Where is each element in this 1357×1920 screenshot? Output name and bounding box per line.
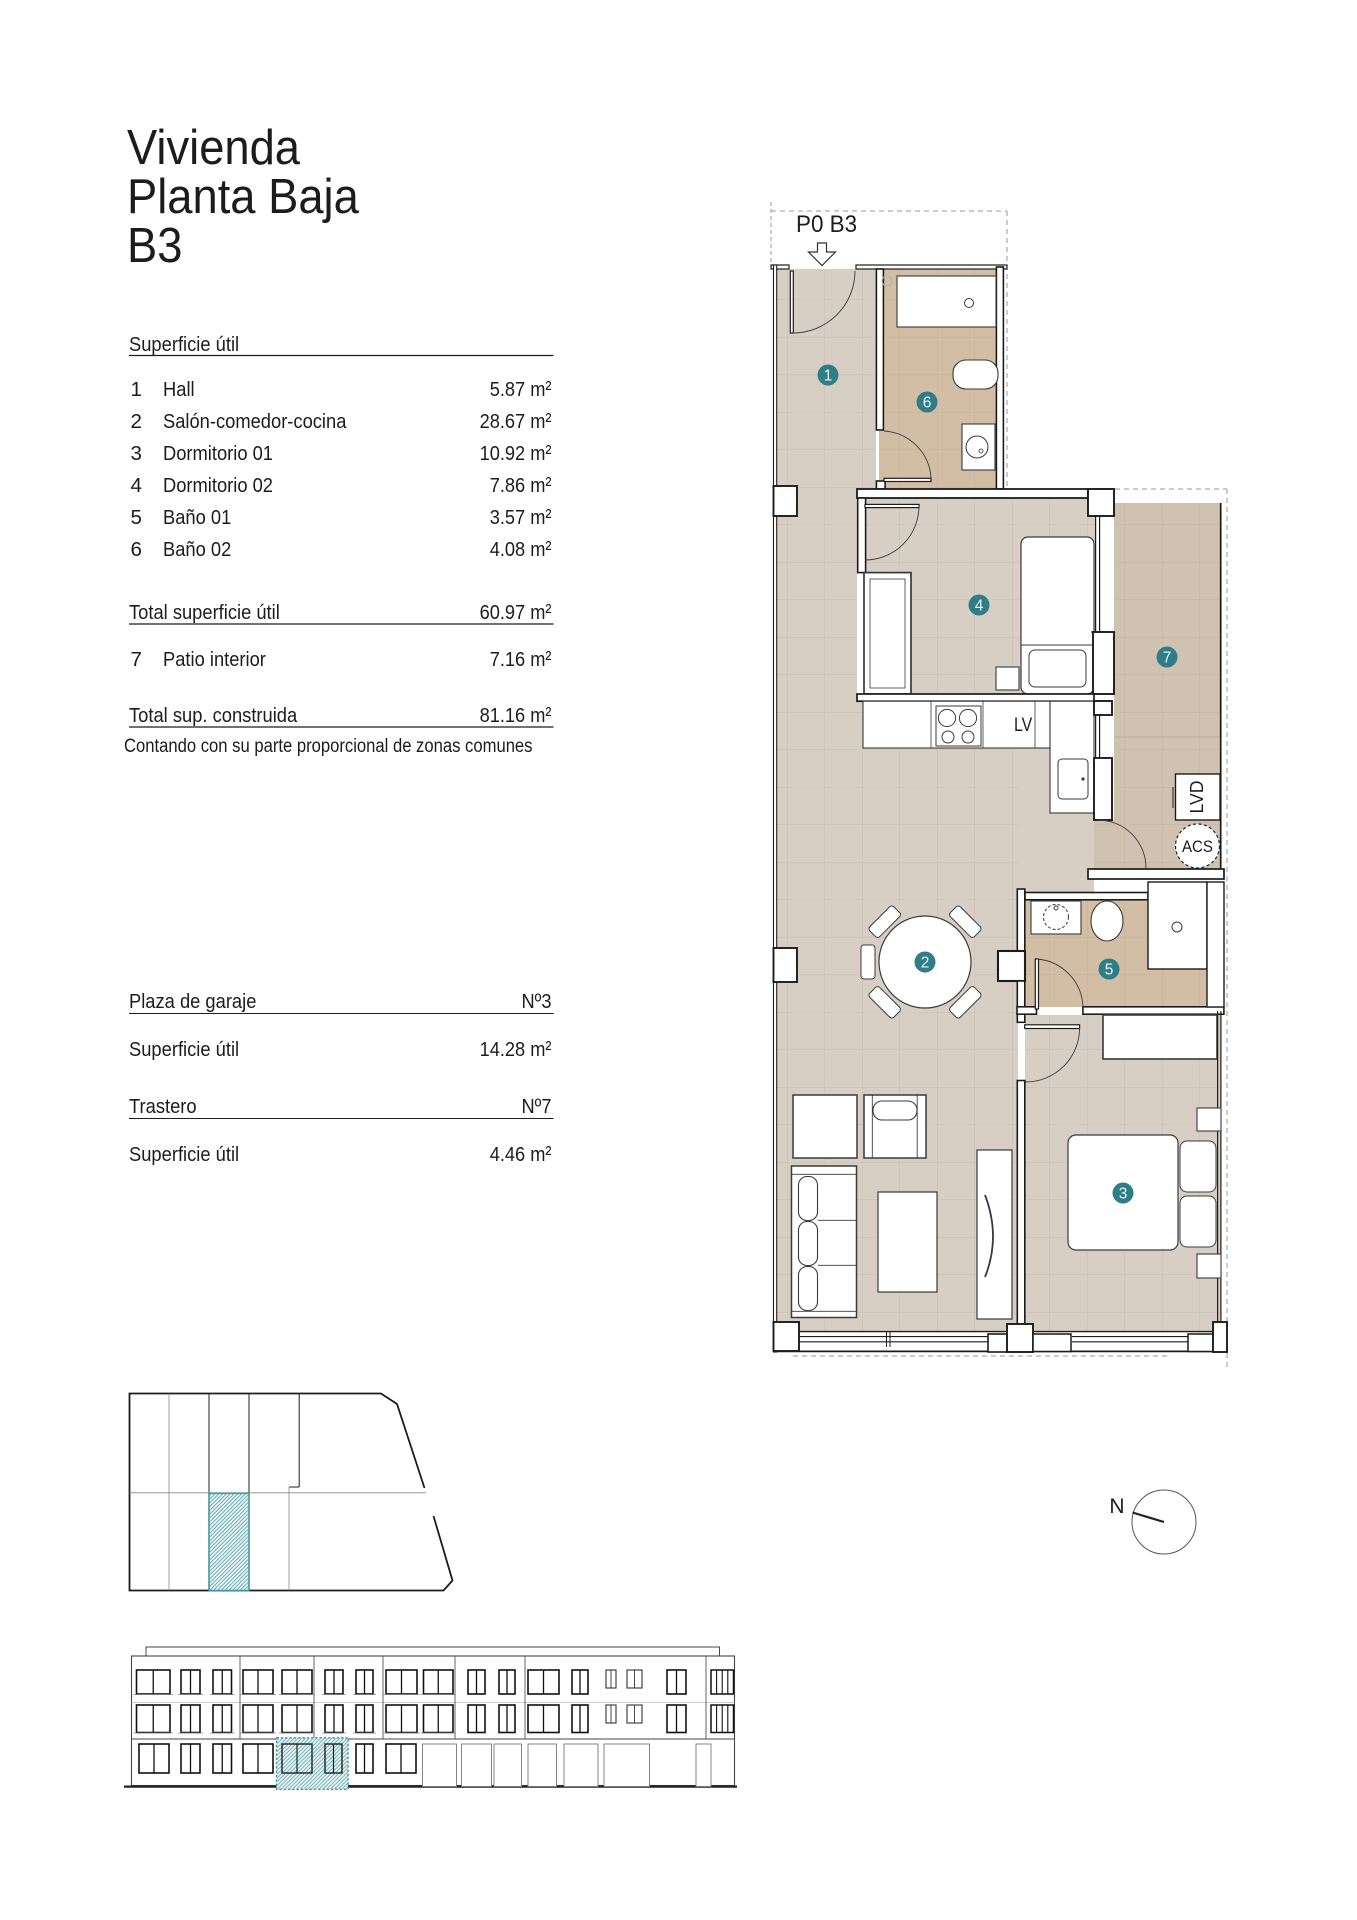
svg-text:5.87 m²: 5.87 m² <box>490 378 552 401</box>
svg-text:28.67 m²: 28.67 m² <box>480 410 552 433</box>
svg-text:4: 4 <box>131 474 142 497</box>
svg-text:Baño 02: Baño 02 <box>163 538 231 561</box>
svg-text:Vivienda: Vivienda <box>127 121 301 175</box>
svg-text:3: 3 <box>131 442 142 465</box>
svg-text:5: 5 <box>1105 962 1114 979</box>
svg-text:Planta Baja: Planta Baja <box>127 170 359 224</box>
svg-text:Superficie útil: Superficie útil <box>129 1143 239 1166</box>
svg-text:Trastero: Trastero <box>129 1095 197 1118</box>
svg-text:Patio interior: Patio interior <box>163 648 266 671</box>
svg-text:7: 7 <box>131 648 142 671</box>
svg-text:Plaza de garaje: Plaza de garaje <box>129 990 256 1013</box>
svg-text:5: 5 <box>131 506 142 529</box>
svg-text:6: 6 <box>131 538 142 561</box>
svg-text:10.92 m²: 10.92 m² <box>480 442 552 465</box>
svg-text:3.57 m²: 3.57 m² <box>490 506 552 529</box>
svg-text:4.46 m²: 4.46 m² <box>490 1143 552 1166</box>
svg-text:ACS: ACS <box>1182 837 1213 856</box>
svg-text:3: 3 <box>1119 1186 1128 1203</box>
svg-text:Nº7: Nº7 <box>522 1095 552 1118</box>
svg-text:Baño 01: Baño 01 <box>163 506 231 529</box>
svg-text:2: 2 <box>921 955 930 972</box>
svg-text:7.86 m²: 7.86 m² <box>490 474 552 497</box>
svg-text:Total superficie útil: Total superficie útil <box>129 601 280 624</box>
svg-text:6: 6 <box>923 395 932 412</box>
svg-text:Total sup. construida: Total sup. construida <box>129 704 298 727</box>
svg-text:B3: B3 <box>127 219 182 273</box>
svg-text:4.08 m²: 4.08 m² <box>490 538 552 561</box>
svg-text:LV: LV <box>1014 715 1033 736</box>
svg-text:1: 1 <box>131 378 142 401</box>
svg-text:14.28 m²: 14.28 m² <box>480 1038 552 1061</box>
svg-text:Superficie útil: Superficie útil <box>129 333 239 356</box>
svg-text:1: 1 <box>824 368 833 385</box>
svg-text:81.16 m²: 81.16 m² <box>480 704 552 727</box>
svg-text:2: 2 <box>131 410 142 433</box>
svg-text:N: N <box>1109 1495 1124 1518</box>
svg-text:60.97 m²: 60.97 m² <box>480 601 552 624</box>
svg-text:7.16 m²: 7.16 m² <box>490 648 552 671</box>
svg-text:4: 4 <box>975 598 984 615</box>
svg-text:Salón-comedor-cocina: Salón-comedor-cocina <box>163 410 347 433</box>
svg-text:7: 7 <box>1163 650 1172 667</box>
svg-text:P0 B3: P0 B3 <box>796 211 857 238</box>
svg-text:Contando con su parte proporci: Contando con su parte proporcional de zo… <box>124 736 533 757</box>
svg-text:LVD: LVD <box>1186 781 1207 814</box>
svg-text:Nº3: Nº3 <box>522 990 552 1013</box>
svg-text:Dormitorio 02: Dormitorio 02 <box>163 474 273 497</box>
svg-text:Dormitorio 01: Dormitorio 01 <box>163 442 273 465</box>
svg-text:Hall: Hall <box>163 378 195 401</box>
svg-text:Superficie útil: Superficie útil <box>129 1038 239 1061</box>
